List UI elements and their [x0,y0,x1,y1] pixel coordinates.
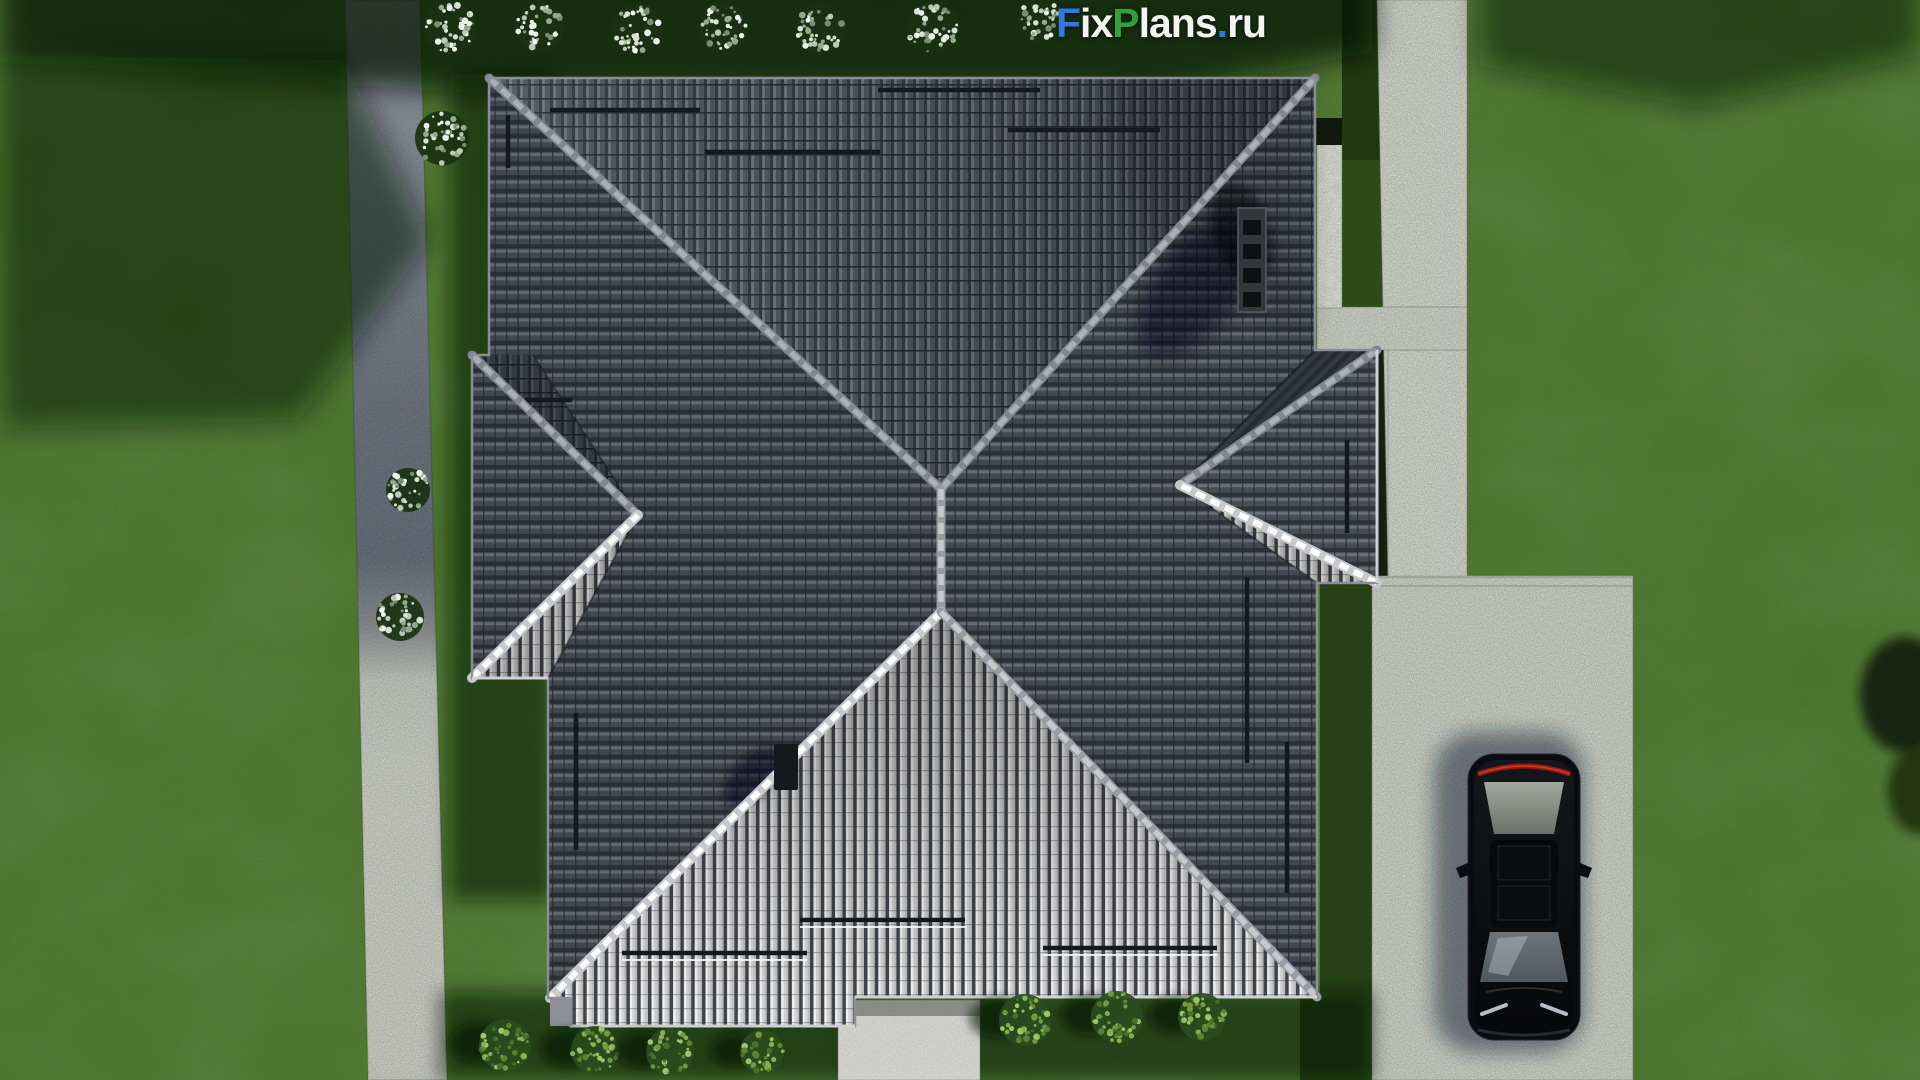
green-bush-1-speckle [604,1030,610,1036]
green-bush-0-speckle [481,1042,486,1047]
green-bush-3-speckle [750,1046,753,1049]
car-rear-window [1484,782,1564,834]
green-bush-5-speckle [1132,1018,1138,1024]
flowering-bush-8-speckle [398,478,404,484]
flowering-bush-5-speckle [941,12,944,15]
flowering-bush-0-speckle [467,12,470,15]
flowering-bush-6-speckle [1027,22,1030,25]
flowering-bush-3-speckle [717,41,719,43]
flowering-bush-4-speckle [811,11,814,14]
flowering-bush-7-speckle [441,130,444,133]
flowering-bush-1-speckle [546,18,552,24]
flowering-bush-7-speckle [442,149,446,153]
chimney-vent-1 [1243,244,1261,259]
green-bush-2-speckle [657,1066,660,1069]
green-bush-6-speckle [1204,1024,1207,1027]
green-bush-1-speckle [587,1067,591,1071]
flowering-bush-0-speckle [443,48,448,53]
green-bush-6-speckle [1187,1006,1193,1012]
green-bush-4-speckle [1009,1026,1014,1031]
flowering-bush-6-speckle [1048,33,1053,38]
green-bush-5-speckle [1110,1038,1114,1042]
flowering-bush-0-speckle [449,33,453,37]
flowering-bush-8-speckle [395,485,398,488]
flowering-bush-8-speckle [394,481,396,483]
flowering-bush-5-speckle [928,33,935,40]
green-bush-3-speckle [755,1031,762,1038]
flowering-bush-2-speckle [636,10,639,13]
green-bush-4-speckle [1016,998,1019,1001]
green-bush-4-speckle [1041,1031,1046,1036]
flowering-bush-4-speckle [817,10,821,14]
flowering-bush-4-speckle [797,26,803,32]
green-bush-0-speckle [484,1039,487,1042]
green-bush-1-speckle [596,1038,601,1043]
green-bush-3-speckle [764,1056,767,1059]
flowering-bush-5-speckle [913,40,916,43]
green-bush-4-speckle [1016,1037,1022,1043]
flowering-bush-6-speckle [1033,20,1038,25]
flowering-bush-4-speckle [812,41,818,47]
watermark-segment-2: P [1112,0,1138,46]
flowering-bush-6-speckle [1039,8,1044,13]
flowering-bush-0-speckle [439,5,445,11]
roof-vent [774,744,798,790]
green-bush-6-speckle [1195,1013,1200,1018]
flowering-bush-4-speckle [833,41,839,47]
flowering-bush-5-speckle [914,32,920,38]
green-bush-3-speckle [766,1047,772,1053]
flowering-bush-3-speckle [710,5,716,11]
green-bush-4-speckle [1032,1039,1037,1044]
green-bush-4-speckle [1005,1030,1010,1035]
flowering-bush-3-speckle [724,16,730,22]
green-bush-4-speckle [1029,1006,1033,1010]
flowering-bush-1-speckle [545,33,550,38]
chimney-vent-2 [1243,268,1261,283]
green-bush-4-speckle [1038,1016,1041,1019]
green-bush-5-speckle [1096,1015,1100,1019]
flowering-bush-3-speckle [705,33,708,36]
green-bush-5-speckle [1097,1001,1103,1007]
flowering-bush-9-speckle [381,612,385,616]
green-bush-2-speckle [666,1071,669,1074]
green-bush-2-speckle [663,1043,670,1050]
flowering-bush-2-speckle [626,35,629,38]
green-bush-1-speckle [600,1031,603,1034]
green-bush-1-speckle [598,1067,601,1070]
site-plan-render [0,0,1920,1080]
flowering-bush-9-speckle [401,609,404,612]
green-bush-4-speckle [1029,1001,1033,1005]
flowering-bush-8-speckle [387,493,393,499]
flowering-bush-7-speckle [462,143,466,147]
flowering-bush-3-speckle [727,41,733,47]
flowering-bush-2-speckle [655,20,662,27]
watermark-segment-3: lans [1139,0,1217,46]
flowering-bush-9-speckle [404,594,408,598]
green-bush-2-speckle [649,1052,654,1057]
flowering-bush-3-speckle [743,24,747,28]
flowering-bush-8-speckle [425,481,428,484]
green-bush-5-speckle [1098,1028,1104,1034]
green-bush-5-speckle [1123,999,1127,1003]
green-bush-4-speckle [1002,1010,1007,1015]
flowering-bush-4-speckle [827,14,833,20]
green-bush-0-speckle [500,1055,503,1058]
green-bush-4-speckle [1031,1029,1034,1032]
green-bush-2-speckle [680,1032,685,1037]
flowering-bush-3-speckle [739,33,744,38]
flowering-bush-6-speckle [1021,18,1024,21]
flowering-bush-9-speckle [401,621,406,626]
flowering-bush-8-speckle [418,493,421,496]
green-bush-1-speckle [578,1049,583,1054]
green-bush-0-speckle [517,1037,521,1041]
flowering-bush-5-speckle [928,4,933,9]
green-bush-6-speckle [1197,1033,1204,1040]
flowering-bush-4-speckle [815,34,818,37]
green-bush-0-speckle [526,1040,529,1043]
green-bush-5-speckle [1103,1000,1109,1006]
flowering-bush-8-speckle [392,489,395,492]
flowering-bush-6-speckle [1022,10,1029,17]
green-bush-5-speckle [1117,1038,1122,1043]
green-bush-4-speckle [1034,998,1039,1003]
green-bush-1-speckle [608,1058,613,1063]
flowering-bush-0 [424,2,476,54]
flowering-bush-1-speckle [522,15,527,20]
flowering-bush-4-speckle [825,20,831,26]
green-bush-3-speckle [752,1041,759,1048]
flowering-bush-0-speckle [453,43,456,46]
car-sunroof-rear [1498,886,1550,920]
green-bush-0-speckle [480,1033,486,1039]
flowering-bush-5-speckle [908,35,912,39]
green-bush-4-speckle [1038,1019,1043,1024]
flowering-bush-2-speckle [639,8,644,13]
flowering-bush-8-speckle [423,477,428,482]
flowering-bush-1-speckle [553,32,558,37]
green-bush-4-speckle [1000,1026,1005,1031]
flowering-bush-1-speckle [540,6,545,11]
flowering-bush-9-speckle [401,626,406,631]
green-bush-6-speckle [1182,1018,1187,1023]
watermark-segment-0: F [1056,0,1080,46]
flowering-bush-0-speckle [444,29,448,33]
green-bush-5-speckle [1114,1029,1117,1032]
flowering-bush-0-speckle [442,24,448,30]
walkway-top-shade [838,1000,980,1016]
flowering-bush-3-speckle [707,40,714,47]
flowering-bush-1-speckle [529,30,535,36]
flowering-bush-9-speckle [378,603,382,607]
green-bush-1-speckle [595,1068,598,1071]
flowering-bush-4-speckle [826,35,831,40]
watermark-logo: FixPlans.ru [1056,0,1266,52]
green-bush-6-speckle [1222,1009,1227,1014]
green-bush-5-speckle [1108,1022,1111,1025]
green-bush-0-speckle [512,1050,517,1055]
flowering-bush-0-speckle [452,9,455,12]
green-bush-5-speckle [1129,1033,1134,1038]
chimney-vent-3 [1243,292,1261,307]
flowering-bush-1-speckle [530,40,533,43]
flowering-bush-2-speckle [627,46,630,49]
green-bush-0-speckle [523,1034,528,1039]
flowering-bush-4-speckle [814,38,817,41]
flowering-bush-8-speckle [394,503,397,506]
render-canvas: FixPlans.ru [0,0,1920,1080]
flowering-bush-3-speckle [738,18,741,21]
flowering-bush-8-speckle [416,470,422,476]
green-bush-0-speckle [488,1052,492,1056]
flowering-bush-5-speckle [939,43,943,47]
green-bush-0-speckle [486,1057,491,1062]
flowering-bush-0-speckle [434,21,440,27]
flowering-bush-1-speckle [525,11,528,14]
green-bush-1-speckle [577,1057,582,1062]
flowering-bush-7-speckle [459,132,463,136]
green-bush-5-speckle [1105,1011,1110,1016]
green-bush-5-speckle [1123,1004,1127,1008]
green-bush-4-speckle [1022,1010,1025,1013]
green-bush-1-speckle [589,1053,592,1056]
green-bush-0-speckle [507,1045,511,1049]
green-bush-0-speckle [511,1040,514,1043]
flowering-bush-1-speckle [529,23,535,29]
flowering-bush-3-speckle [722,14,725,17]
green-bush-0-speckle [503,1065,508,1070]
green-bush-1-speckle [585,1029,591,1035]
flowering-bush-0-speckle [453,34,458,39]
flowering-bush-0-speckle [444,21,447,24]
green-bush-3-speckle [742,1047,748,1053]
flowering-bush-1-speckle [516,30,520,34]
flowering-bush-0-speckle [459,17,462,20]
flowering-bush-9-speckle [385,616,390,621]
flowering-bush-2-speckle [619,12,623,16]
flowering-bush-2-speckle [640,47,646,53]
green-bush-2-speckle [648,1039,654,1045]
flowering-bush-3-speckle [716,9,719,12]
flowering-bush-9-speckle [411,602,414,605]
flowering-bush-2-speckle [647,19,654,26]
flowering-bush-5-speckle [934,4,940,10]
flowering-bush-6-speckle [1021,5,1026,10]
green-bush-2-speckle [683,1064,688,1069]
flowering-bush-1-speckle [530,20,534,24]
green-bush-0-speckle [503,1029,510,1036]
flowering-bush-5-speckle [952,28,958,34]
flowering-bush-3-speckle [732,38,739,45]
green-bush-0-speckle [517,1061,520,1064]
flowering-bush-7-speckle [456,126,459,129]
flowering-bush-6-speckle [1030,36,1034,40]
green-bush-1-speckle [603,1044,609,1050]
flowering-bush-1-speckle [523,21,526,24]
green-bush-6-speckle [1206,1023,1211,1028]
flowering-bush-3-speckle [734,11,736,13]
flowering-bush-1-speckle [535,15,539,19]
flowering-bush-7-speckle [439,160,445,166]
flowering-bush-6-speckle [1027,16,1032,21]
green-bush-0-speckle [521,1032,524,1035]
green-bush-5-speckle [1117,1023,1122,1028]
green-bush-1-speckle [614,1055,619,1060]
flowering-bush-5-speckle [917,8,919,10]
flowering-bush-5-speckle [937,15,943,21]
green-bush-0-speckle [494,1047,497,1050]
green-bush-0-speckle [499,1045,502,1048]
flowering-bush-0-speckle [467,21,472,26]
flowering-bush-4-speckle [799,12,806,19]
green-bush-3-speckle [770,1037,774,1041]
flowering-bush-3-speckle [723,33,726,36]
green-bush-5-speckle [1116,996,1119,999]
flowering-bush-8-speckle [408,503,412,507]
green-bush-3-speckle [781,1049,785,1053]
flowering-bush-2-speckle [634,41,639,46]
green-bush-0-speckle [520,1053,527,1060]
flowering-bush-9-speckle [402,600,407,605]
flowering-bush-8-speckle [410,472,414,476]
flowering-bush-0-speckle [468,40,471,43]
green-bush-1-speckle [609,1065,612,1068]
green-bush-4-speckle [1041,1029,1044,1032]
flowering-bush-0-speckle [426,19,431,24]
flowering-bush-7-speckle [450,134,454,138]
green-bush-5-speckle [1108,991,1114,997]
flowering-bush-9-speckle [403,613,408,618]
green-bush-6-speckle [1183,1001,1188,1006]
flowering-bush-8-speckle [392,473,397,478]
flowering-bush-5-speckle [933,28,939,34]
green-bush-5-speckle [1131,1025,1136,1030]
green-bush-1-speckle [596,1053,600,1057]
flowering-bush-1-speckle [520,25,524,29]
flowering-bush-6-speckle [1048,16,1051,19]
green-bush-6-speckle [1201,998,1204,1001]
green-bush-2-speckle [666,1037,669,1040]
green-bush-0-speckle [497,1051,500,1054]
flowering-bush-7-speckle [423,155,428,160]
flowering-bush-5-speckle [941,38,946,43]
flowering-bush-3-speckle [707,17,711,21]
green-bush-0-speckle [491,1063,494,1066]
flowering-bush-7-speckle [432,115,434,117]
flowering-bush-2-speckle [644,8,650,14]
flowering-bush-7-speckle [423,146,426,149]
flowering-bush-4 [795,4,845,54]
green-bush-2-speckle [655,1044,661,1050]
flowering-bush-8-speckle [416,503,421,508]
flowering-bush-5-speckle [947,30,950,33]
green-bush-4-speckle [1015,1003,1020,1008]
flowering-bush-3-speckle [706,29,708,31]
green-bush-4-speckle [1023,1035,1030,1042]
green-bush-4-speckle [1044,1011,1050,1017]
green-bush-5-speckle [1102,1025,1106,1029]
green-bush-1-speckle [582,1054,588,1060]
flowering-bush-5-speckle [938,33,941,36]
flowering-bush-7-speckle [430,134,433,137]
flowering-bush-3-speckle [701,23,705,27]
watermark-segment-1: ix [1080,0,1112,46]
green-bush-6-speckle [1183,1013,1186,1016]
green-bush-1-speckle [606,1050,610,1054]
flowering-bush-3-speckle [715,29,721,35]
flowering-bush-3-speckle [713,19,718,24]
green-bush-1-speckle [592,1054,595,1057]
green-bush-6-speckle [1200,1002,1205,1007]
green-bush-6-speckle [1220,1017,1225,1022]
flowering-bush-0-speckle [447,5,453,11]
green-bush-3-speckle [777,1043,782,1048]
flowering-bush-9-speckle [404,605,407,608]
green-bush-5-speckle [1128,1028,1132,1032]
flowering-bush-2-speckle [643,17,647,21]
green-bush-6-speckle [1187,1021,1191,1025]
flowering-bush-8-speckle [404,500,407,503]
flowering-bush-2-speckle [632,46,635,49]
green-bush-3-speckle [746,1058,752,1064]
flowering-bush-9-speckle [377,617,381,621]
flowering-bush-0-speckle [459,36,464,41]
flowering-bush-4-speckle [838,20,845,27]
green-bush-0-speckle [493,1036,498,1041]
green-bush-4-speckle [1006,1023,1010,1027]
green-bush-1-speckle [570,1051,575,1056]
green-bush-2-speckle [677,1039,680,1042]
corner-fascia [550,998,572,1026]
green-bush-4-speckle [1031,1014,1037,1020]
flowering-bush-5-speckle [926,50,928,52]
flowering-bush-2-speckle [620,27,625,32]
green-bush-4-speckle [1021,1026,1027,1032]
flowering-bush-3-speckle [719,47,722,50]
flowering-bush-9-speckle [392,624,395,627]
flowering-bush-9-speckle [390,602,394,606]
flowering-bush-8-speckle [408,491,411,494]
flowering-bush-7-speckle [457,148,463,154]
flowering-bush-7-speckle [461,125,467,131]
flowering-bush-0-speckle [425,25,428,28]
flowering-bush-6-speckle [1046,7,1049,10]
flowering-bush-2-speckle [634,50,638,54]
flowering-bush-5-speckle [919,31,925,37]
flowering-bush-4-speckle [832,36,836,40]
flowering-bush-8-speckle [388,484,391,487]
green-bush-4-speckle [1027,1031,1030,1034]
flowering-bush-0-speckle [454,2,461,9]
green-bush-0-speckle [516,1027,522,1033]
watermark-segment-4: . [1217,0,1227,46]
flowering-bush-3-speckle [730,6,733,9]
flowering-bush-9-speckle [412,622,418,628]
parked-car [1434,732,1592,1052]
green-bush-3-speckle [771,1057,776,1062]
flowering-bush-3-base [699,3,747,51]
green-bush-6-speckle [1205,1014,1212,1021]
flowering-bush-7-speckle [439,112,443,116]
flowering-bush-6-speckle [1045,25,1051,31]
flowering-bush-4-speckle [802,39,806,43]
flowering-bush-9-speckle [385,627,392,634]
green-bush-1-speckle [588,1037,591,1040]
flowering-bush-4-speckle [818,43,824,49]
green-bush-4-speckle [1013,1009,1017,1013]
